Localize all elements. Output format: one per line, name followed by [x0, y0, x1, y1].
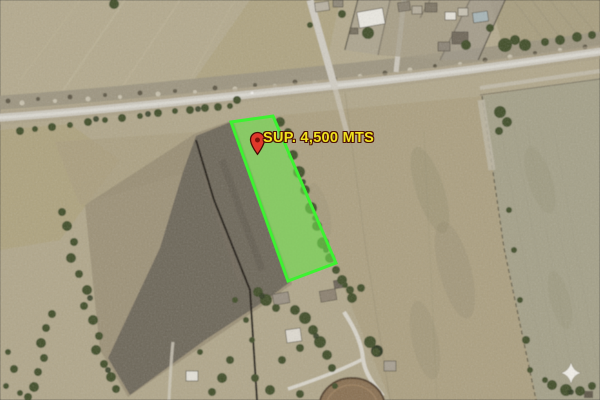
parcel-area-label: SUP. 4,500 MTS — [263, 130, 374, 146]
terrain-canvas — [0, 0, 600, 400]
pin-center-dot — [255, 138, 260, 143]
satellite-map-view[interactable]: SUP. 4,500 MTS — [0, 0, 600, 400]
